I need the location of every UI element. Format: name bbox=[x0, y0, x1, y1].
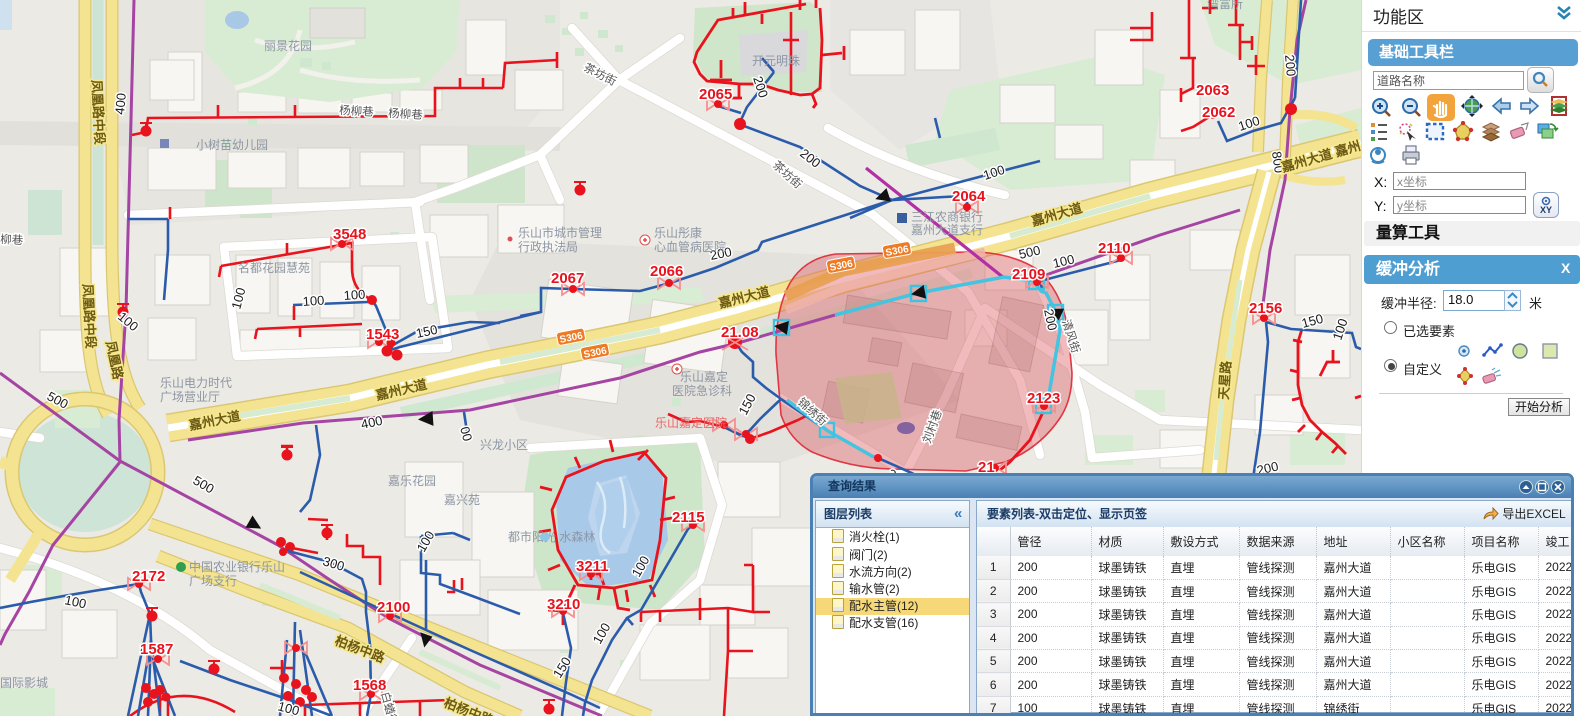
svg-text:2067: 2067 bbox=[551, 270, 584, 287]
svg-text:乐山彤康: 乐山彤康 bbox=[654, 225, 702, 240]
svg-text:XY: XY bbox=[1540, 205, 1552, 215]
svg-text:国际影城: 国际影城 bbox=[0, 676, 48, 690]
svg-text:400: 400 bbox=[112, 92, 129, 115]
svg-text:2066: 2066 bbox=[650, 263, 683, 280]
svg-text:三江农商银行: 三江农商银行 bbox=[911, 209, 983, 224]
svg-text:乐山电力时代: 乐山电力时代 bbox=[160, 376, 232, 390]
svg-text:2064: 2064 bbox=[952, 188, 986, 205]
svg-text:名都花园慧苑: 名都花园慧苑 bbox=[238, 260, 310, 275]
svg-text:3210: 3210 bbox=[547, 596, 580, 613]
svg-text:200: 200 bbox=[1282, 54, 1299, 77]
svg-text:2156: 2156 bbox=[1249, 300, 1282, 317]
svg-text:100: 100 bbox=[343, 287, 366, 303]
svg-text:都市阳光 水森林: 都市阳光 水森林 bbox=[508, 529, 595, 544]
svg-text:广场支行: 广场支行 bbox=[189, 574, 237, 588]
svg-text:柳巷: 柳巷 bbox=[0, 232, 24, 247]
svg-text:100: 100 bbox=[302, 293, 325, 309]
svg-text:乐山嘉定: 乐山嘉定 bbox=[680, 369, 728, 384]
svg-text:2123: 2123 bbox=[1027, 390, 1060, 407]
svg-text:21.08: 21.08 bbox=[721, 324, 759, 341]
svg-text:广场营业厅: 广场营业厅 bbox=[160, 390, 220, 404]
svg-text:乐山市城市管理: 乐山市城市管理 bbox=[518, 225, 602, 240]
svg-text:2172: 2172 bbox=[132, 568, 165, 585]
svg-text:开元明珠: 开元明珠 bbox=[752, 54, 800, 68]
svg-text:2062: 2062 bbox=[1202, 104, 1235, 121]
svg-text:行政执法局: 行政执法局 bbox=[518, 240, 578, 254]
svg-text:2063: 2063 bbox=[1196, 82, 1229, 99]
svg-text:嘉乐花园: 嘉乐花园 bbox=[388, 473, 436, 488]
svg-text:嘉兴苑: 嘉兴苑 bbox=[444, 493, 480, 507]
svg-text:嘉州大道支行: 嘉州大道支行 bbox=[911, 223, 983, 237]
svg-text:3211: 3211 bbox=[576, 558, 609, 575]
svg-text:丽景花园: 丽景花园 bbox=[264, 38, 312, 53]
svg-text:2065: 2065 bbox=[699, 86, 732, 103]
svg-text:2115: 2115 bbox=[672, 509, 705, 526]
svg-text:1568: 1568 bbox=[353, 677, 386, 694]
svg-text:中国农业银行乐山: 中国农业银行乐山 bbox=[189, 559, 285, 574]
svg-text:1587: 1587 bbox=[140, 641, 173, 658]
svg-text:湾富所: 湾富所 bbox=[1207, 0, 1243, 11]
svg-text:2110: 2110 bbox=[1098, 240, 1131, 257]
svg-text:小树苗幼儿园: 小树苗幼儿园 bbox=[196, 137, 268, 152]
svg-text:1543: 1543 bbox=[366, 326, 399, 343]
svg-text:3548: 3548 bbox=[333, 226, 366, 243]
svg-text:医院急诊科: 医院急诊科 bbox=[672, 383, 732, 398]
svg-text:2100: 2100 bbox=[377, 599, 410, 616]
svg-text:乐山嘉定医院: 乐山嘉定医院 bbox=[655, 415, 727, 430]
svg-text:天星路: 天星路 bbox=[1216, 359, 1234, 400]
svg-text:心血管病医院: 心血管病医院 bbox=[654, 239, 726, 254]
svg-text:2109: 2109 bbox=[1012, 266, 1045, 283]
svg-text:兴龙小区: 兴龙小区 bbox=[480, 438, 528, 452]
